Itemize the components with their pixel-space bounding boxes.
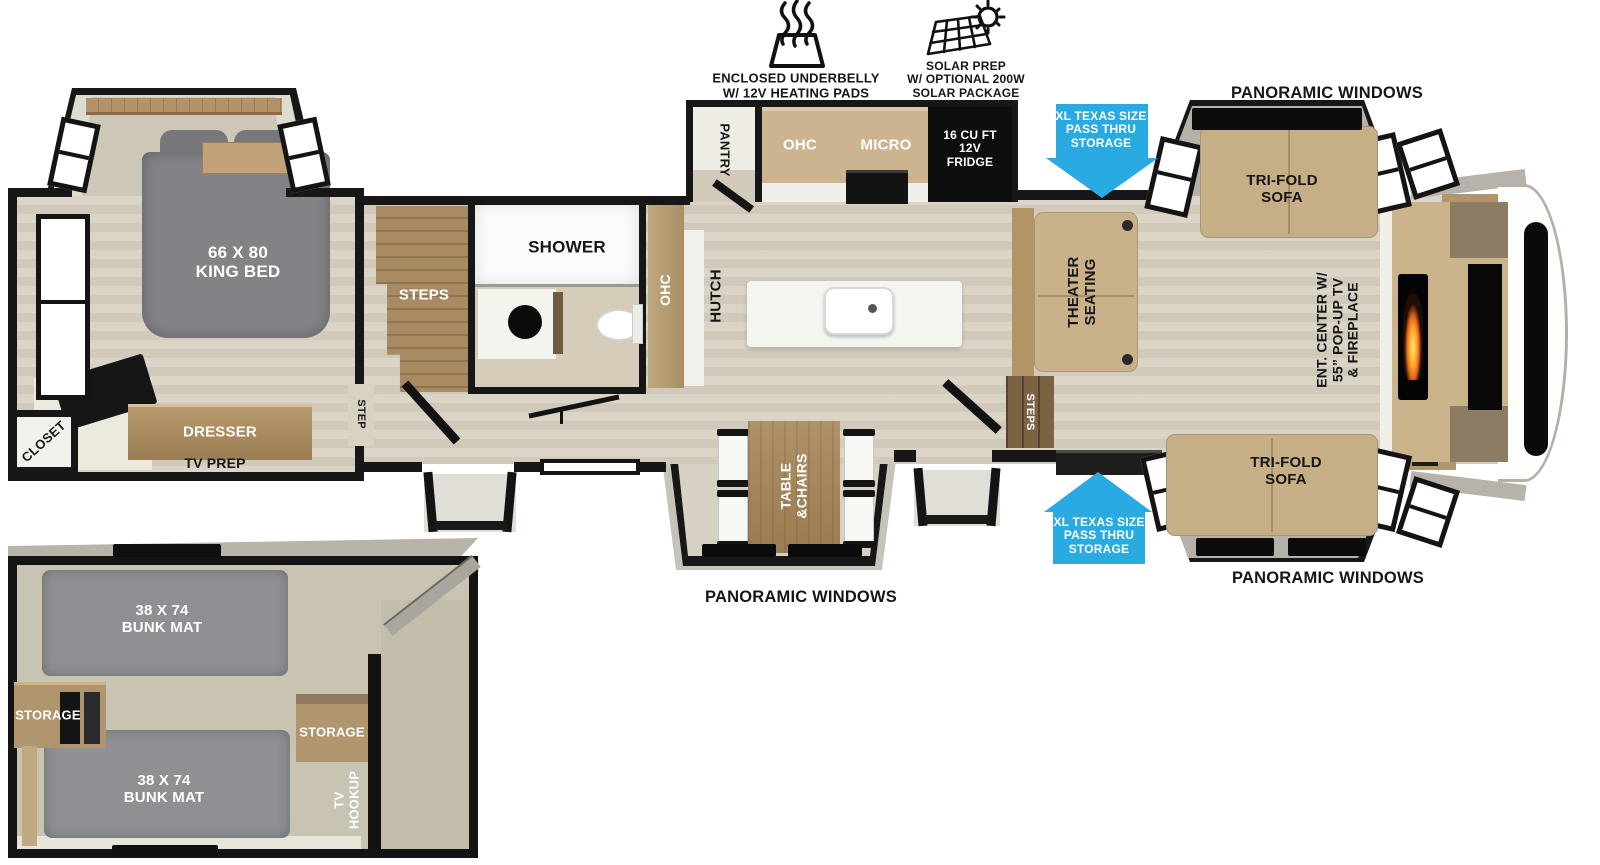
chair-frame <box>717 429 749 436</box>
cupholder-bottom <box>1122 354 1133 365</box>
theater-steps-label: STEPS <box>1024 393 1036 430</box>
front-cap-window <box>1524 222 1548 456</box>
entry-steps-1 <box>424 474 516 532</box>
sink-faucet <box>868 304 877 313</box>
steps-label: STEPS <box>399 288 449 305</box>
chair-frame <box>843 480 875 487</box>
ent-center-label: ENT. CENTER W/ 55” POP-UP TV & FIREPLACE <box>1314 272 1361 388</box>
bath-sink <box>508 305 542 339</box>
ent-center-cabinet-bottom <box>1450 406 1508 462</box>
heating-pads-icon <box>758 0 836 70</box>
island-sink <box>824 287 894 335</box>
bedroom-wall-left <box>8 188 17 480</box>
panoramic-windows-bottom-right-label: PANORAMIC WINDOWS <box>1232 569 1424 587</box>
bunk-mat-bottom-label: 38 X 74 BUNK MAT <box>124 773 204 807</box>
tri-fold-sofa-bottom-label: TRI-FOLD SOFA <box>1250 455 1322 489</box>
panoramic-windows-bottom-center-label: PANORAMIC WINDOWS <box>705 588 897 606</box>
step-tread <box>435 521 505 530</box>
bedroom-wall-right-upper <box>355 188 364 386</box>
window-pane-divider <box>1409 156 1446 172</box>
hutch-counter <box>684 230 704 386</box>
bath-wall-bottom-left <box>364 462 422 472</box>
panoramic-glass-bottom-2 <box>1288 538 1366 556</box>
window-pane-divider <box>1157 171 1191 183</box>
ohc-label: OHC <box>783 138 817 155</box>
fridge-label: 16 CU FT 12V FRIDGE <box>943 129 997 169</box>
dinette-glass-2 <box>788 544 862 557</box>
tv-hookup-label: TV HOOKUP <box>332 771 361 829</box>
bunk-storage-left-label: STORAGE <box>15 709 80 724</box>
bath-door-handle <box>560 408 563 424</box>
pass-thru-top-label: XL TEXAS SIZE PASS THRU STORAGE <box>1055 110 1146 150</box>
ohc-strip-label: OHC <box>658 274 674 306</box>
hall-wall-top <box>364 196 690 205</box>
step-tread <box>924 515 989 524</box>
bed-tray <box>202 142 294 174</box>
window-pane-divider <box>289 150 319 160</box>
dinette-chair-4 <box>844 492 874 546</box>
underbelly-label: ENCLOSED UNDERBELLY W/ 12V HEATING PADS <box>712 71 879 100</box>
cupholder-top <box>1122 220 1133 231</box>
dinette-chair-2 <box>718 492 748 546</box>
range <box>846 170 908 204</box>
bunkroom-inner-wall <box>368 654 381 849</box>
storage-panel <box>84 692 100 744</box>
pass-thru-arrow-bottom-tip <box>1044 472 1152 512</box>
bedroom-wall-top-left <box>8 188 72 197</box>
chair-frame <box>843 490 875 497</box>
dinette-glass-1 <box>702 544 776 557</box>
panoramic-glass-top <box>1192 108 1362 130</box>
chair-frame <box>717 490 749 497</box>
dresser-label: DRESSER <box>183 425 257 442</box>
panoramic-glass-bottom-1 <box>1196 538 1274 556</box>
theater-label: THEATER SEATING <box>1066 256 1100 327</box>
bunk-mat-top-label: 38 X 74 BUNK MAT <box>122 603 202 637</box>
bath-cabinet-panel <box>553 292 563 354</box>
chair-frame <box>717 480 749 487</box>
rv-floorplan: ENCLOSED UNDERBELLY W/ 12V HEATING PADS … <box>0 0 1600 865</box>
window-pane-divider <box>1409 504 1446 520</box>
solar-prep-icon <box>924 0 1010 60</box>
headboard <box>86 98 282 115</box>
king-bed-label: 66 X 80 KING BED <box>196 243 281 281</box>
window-pane-divider <box>41 300 85 304</box>
pass-thru-bottom-label: XL TEXAS SIZE PASS THRU STORAGE <box>1053 516 1144 556</box>
dinette-chair-3 <box>844 431 874 485</box>
bath-exterior-window <box>540 459 640 475</box>
bedroom-wall-bottom <box>8 472 364 481</box>
tv-prep-label: TV PREP <box>184 456 245 472</box>
toilet-tank <box>632 304 643 344</box>
tri-fold-sofa-top-label: TRI-FOLD SOFA <box>1246 173 1318 207</box>
window-pane-divider <box>59 150 89 160</box>
roof-vent-bottom <box>112 845 218 856</box>
solar-label: SOLAR PREP W/ OPTIONAL 200W SOLAR PACKAG… <box>907 60 1025 100</box>
hutch-label: HUTCH <box>709 269 726 323</box>
pass-thru-arrow-top-tip <box>1046 158 1158 198</box>
step-label: STEP <box>355 399 367 429</box>
shower-label: SHOWER <box>528 237 606 256</box>
theater-console <box>1012 208 1034 376</box>
bedroom-left-window <box>36 214 90 400</box>
shower-glass <box>475 284 639 287</box>
bunk-post <box>22 746 37 846</box>
ent-center-cabinet-top <box>1450 202 1508 258</box>
entry-steps-2 <box>914 470 1000 526</box>
entry-wall-left <box>894 450 916 462</box>
micro-label: MICRO <box>861 138 912 155</box>
bunk-storage-right-label: STORAGE <box>299 726 364 741</box>
pantry-label: PANTRY <box>717 123 732 176</box>
table-chairs-label: TABLE &CHAIRS <box>778 453 809 518</box>
dinette-chair-1 <box>718 431 748 485</box>
bunkroom-right-floor <box>381 600 469 849</box>
pop-up-tv <box>1468 264 1502 410</box>
roof-vent-top <box>113 544 221 557</box>
entry-wall-right <box>992 450 1058 462</box>
chair-frame <box>843 429 875 436</box>
panoramic-windows-top-label: PANORAMIC WINDOWS <box>1231 84 1423 102</box>
pantry-wall <box>755 107 762 202</box>
fireplace-flame <box>1403 294 1423 380</box>
